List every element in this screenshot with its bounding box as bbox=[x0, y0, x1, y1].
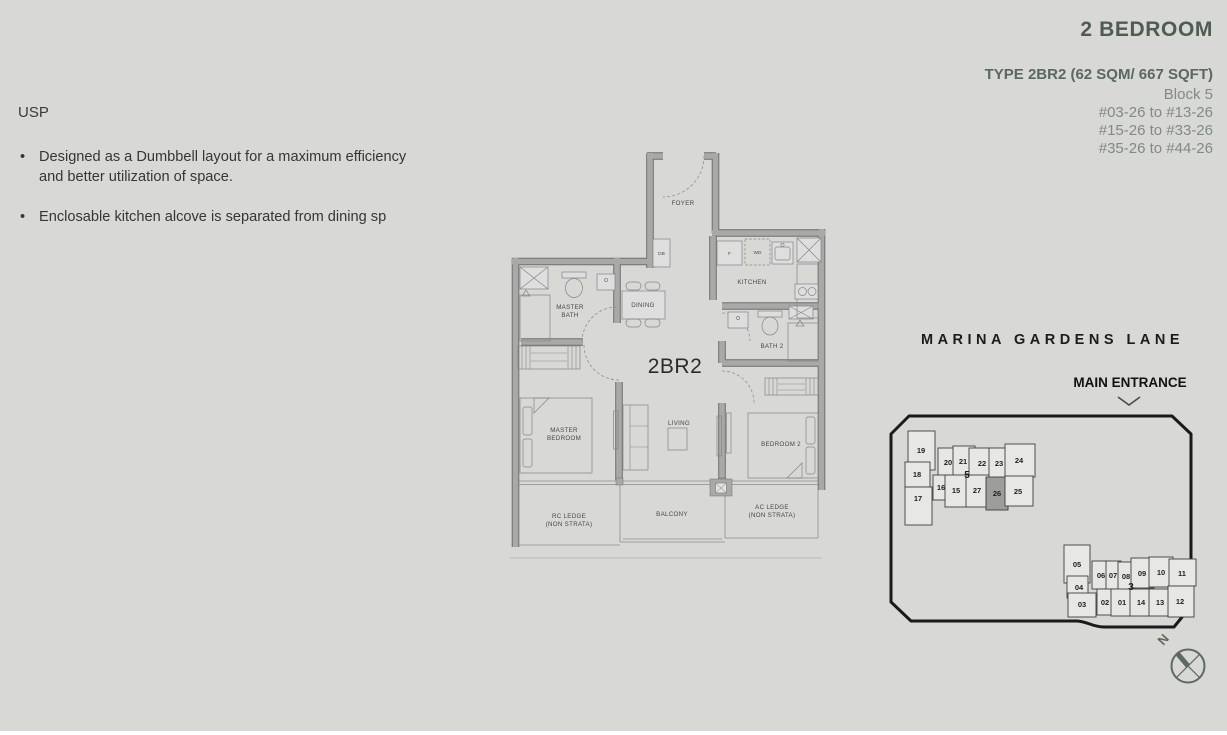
floor-plan-drawing: FOYER KITCHEN DINING MASTERBATH BATH 2 2… bbox=[500, 145, 830, 565]
fridge-label: F bbox=[728, 251, 731, 257]
svg-text:19: 19 bbox=[917, 446, 925, 455]
unit-header: 2 BEDROOM TYPE 2BR2 (62 SQM/ 667 SQFT) B… bbox=[985, 18, 1213, 158]
svg-text:01: 01 bbox=[1118, 598, 1126, 607]
svg-text:17: 17 bbox=[914, 494, 922, 503]
svg-text:25: 25 bbox=[1014, 487, 1022, 496]
room-label-ac-ledge: AC LEDGE(NON STRATA) bbox=[749, 504, 796, 519]
site-block-3: 05 04 03 06 07 08 09 10 11 02 01 14 13 1… bbox=[1064, 545, 1196, 617]
svg-text:11: 11 bbox=[1178, 569, 1186, 578]
site-block-5: 19 18 17 20 21 22 23 24 16 15 27 26 25 5 bbox=[905, 431, 1035, 525]
svg-text:05: 05 bbox=[1073, 560, 1081, 569]
usp-section: USP Designed as a Dumbbell layout for a … bbox=[18, 104, 423, 247]
bath2-toilet bbox=[758, 311, 782, 335]
usp-heading: USP bbox=[18, 104, 423, 121]
kitchen-sink bbox=[772, 242, 793, 264]
hob-icon bbox=[795, 284, 818, 299]
sofa bbox=[623, 405, 648, 470]
coffee-table bbox=[668, 428, 687, 450]
site-map: 19 18 17 20 21 22 23 24 16 15 27 26 25 5… bbox=[885, 410, 1220, 640]
master-shower bbox=[520, 295, 550, 341]
street-name: MARINA GARDENS LANE bbox=[885, 332, 1220, 348]
svg-text:13: 13 bbox=[1156, 598, 1164, 607]
room-label-balcony: BALCONY bbox=[656, 511, 688, 518]
svg-text:27: 27 bbox=[973, 486, 981, 495]
entry-door-arc bbox=[663, 156, 704, 197]
compass-north-label: N bbox=[1154, 631, 1171, 648]
site-unit-03: 03 bbox=[1068, 593, 1096, 617]
service-shaft-icon bbox=[797, 238, 821, 262]
site-unit-25: 25 bbox=[1005, 476, 1033, 506]
svg-text:20: 20 bbox=[944, 458, 952, 467]
service-shaft-icon bbox=[520, 267, 548, 296]
svg-text:26: 26 bbox=[993, 489, 1001, 498]
svg-text:09: 09 bbox=[1138, 569, 1146, 578]
svg-text:12: 12 bbox=[1176, 597, 1184, 606]
master-bath-sink bbox=[597, 274, 615, 290]
bottom-strip bbox=[0, 731, 1227, 735]
unit-stack-range: #03-26 to #13-26 bbox=[985, 104, 1213, 122]
entrance-arrow-icon bbox=[1116, 395, 1142, 408]
usp-list: Designed as a Dumbbell layout for a maxi… bbox=[18, 147, 423, 227]
svg-text:22: 22 bbox=[978, 459, 986, 468]
unit-stack-range: #35-26 to #44-26 bbox=[985, 140, 1213, 158]
svg-text:14: 14 bbox=[1137, 598, 1146, 607]
bedroom2-dresser bbox=[727, 413, 732, 453]
master-bath-door-arc bbox=[582, 307, 617, 342]
site-unit-11: 11 bbox=[1169, 559, 1196, 586]
db-label: DB bbox=[658, 251, 665, 257]
master-bath-toilet bbox=[562, 272, 586, 298]
room-label-master-bedroom: MASTERBEDROOM bbox=[547, 427, 581, 442]
svg-text:23: 23 bbox=[995, 459, 1003, 468]
room-label-dining: DINING bbox=[631, 302, 654, 309]
floor-plan-figure: FOYER KITCHEN DINING MASTERBATH BATH 2 2… bbox=[500, 145, 830, 570]
svg-text:16: 16 bbox=[937, 483, 945, 492]
unit-stack-range: #15-26 to #33-26 bbox=[985, 122, 1213, 140]
site-unit-12: 12 bbox=[1168, 586, 1194, 617]
usp-bullet: Designed as a Dumbbell layout for a maxi… bbox=[18, 147, 423, 187]
unit-block: Block 5 bbox=[985, 86, 1213, 104]
room-label-rc-ledge: RC LEDGE(NON STRATA) bbox=[546, 513, 593, 528]
svg-text:10: 10 bbox=[1157, 568, 1165, 577]
svg-text:21: 21 bbox=[959, 457, 967, 466]
svg-text:07: 07 bbox=[1109, 571, 1117, 580]
site-unit-18: 18 bbox=[905, 462, 930, 487]
svg-text:18: 18 bbox=[913, 470, 921, 479]
wall-junction bbox=[616, 478, 623, 485]
bedroom2-door-arc bbox=[722, 371, 754, 403]
unit-type-line: TYPE 2BR2 (62 SQM/ 667 SQFT) bbox=[985, 66, 1213, 83]
room-label-foyer: FOYER bbox=[672, 200, 695, 207]
room-label-master-bath: MASTERBATH bbox=[556, 304, 584, 319]
bedroom2-wardrobe bbox=[765, 378, 818, 395]
site-unit-24: 24 bbox=[1005, 444, 1035, 477]
brochure-page: 2 BEDROOM TYPE 2BR2 (62 SQM/ 667 SQFT) B… bbox=[0, 0, 1227, 731]
master-bedroom-door-arc bbox=[584, 345, 619, 380]
washer-dryer-label: WD bbox=[754, 250, 763, 256]
ac-unit-box bbox=[710, 479, 732, 496]
svg-text:24: 24 bbox=[1015, 456, 1024, 465]
room-label-bath2: BATH 2 bbox=[760, 343, 783, 350]
page-title: 2 BEDROOM bbox=[985, 18, 1213, 42]
svg-text:02: 02 bbox=[1101, 598, 1109, 607]
room-label-kitchen: KITCHEN bbox=[737, 279, 766, 286]
bath2-sink bbox=[728, 312, 748, 328]
room-label-bedroom2: BEDROOM 2 bbox=[761, 441, 801, 448]
bath2-shower bbox=[788, 323, 818, 361]
site-unit-17: 17 bbox=[905, 487, 932, 525]
block3-label: 3 bbox=[1128, 582, 1134, 593]
walls bbox=[512, 153, 825, 547]
svg-text:06: 06 bbox=[1097, 571, 1105, 580]
room-label-living: LIVING bbox=[668, 420, 690, 427]
svg-text:15: 15 bbox=[952, 486, 960, 495]
unit-type-label: 2BR2 bbox=[648, 355, 703, 378]
usp-bullet: Enclosable kitchen alcove is separated f… bbox=[18, 207, 423, 227]
svg-text:03: 03 bbox=[1078, 600, 1086, 609]
compass-icon: N bbox=[1150, 626, 1222, 690]
svg-text:04: 04 bbox=[1075, 583, 1084, 592]
main-entrance-label: MAIN ENTRANCE bbox=[1040, 375, 1220, 390]
master-wardrobe bbox=[518, 346, 580, 369]
svg-text:08: 08 bbox=[1122, 572, 1130, 581]
block5-label: 5 bbox=[964, 470, 970, 481]
